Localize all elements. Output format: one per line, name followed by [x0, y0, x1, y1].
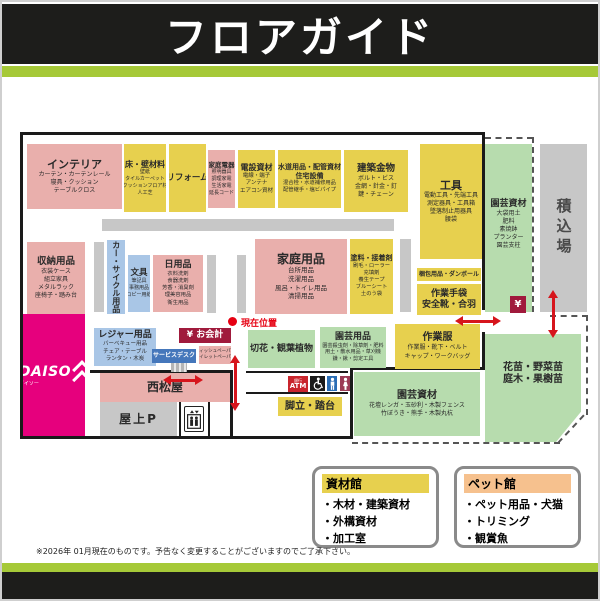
area-stepladder-title: 脚立・踏台: [285, 401, 335, 413]
boundary-dashed: [352, 442, 560, 444]
wall: [246, 392, 348, 394]
area-paint-line: 土のう袋: [361, 291, 382, 298]
area-garden-supply-title: 園芸資材: [490, 199, 526, 210]
area-stepladder: 脚立・踏台: [278, 397, 342, 416]
area-interior-line: カーテン・カーテンレール: [38, 171, 110, 179]
mens-restroom-icon: [327, 376, 337, 391]
wall: [20, 132, 485, 135]
area-packing-label: 梱包用品・ダンボール: [417, 268, 481, 281]
passage-arrow: [552, 297, 555, 331]
area-household-line: 台所用品: [288, 266, 314, 275]
shelf: [94, 242, 104, 312]
checkout-counter: ¥ お会計: [179, 328, 231, 343]
area-garden-supply-line: 園芸支柱: [496, 242, 520, 250]
boundary-dashed: [586, 315, 588, 415]
roof-parking: 屋上P: [100, 402, 177, 436]
service-desk: サービスデスク: [152, 349, 196, 363]
area-garden-supply-line: 肥料: [502, 218, 514, 226]
area-garden-material: 園芸資材 花壇レンガ・玉砂利・木製フェンス 竹ぼうき・熊手・木製丸杭: [354, 372, 480, 436]
area-paint-line: 刷毛・ローラー: [353, 263, 390, 270]
page-title: フロアガイド: [165, 4, 435, 65]
area-cut-flowers: 切花・観葉植物: [248, 330, 315, 368]
legend-item: ・加工室: [322, 530, 429, 547]
area-tissue: ティッシュペーパー トイレットペーパー: [199, 346, 231, 364]
area-floor-wall-line: タイルカーペット: [125, 176, 165, 183]
area-stationery-title: 文具: [130, 268, 147, 278]
area-plumbing-line: 配管継手・塩ビパイプ: [283, 187, 336, 194]
area-garden-goods-line: 鎌・鍬・剪定工具: [333, 356, 374, 363]
area-tools-line: 測定器具・工具箱: [427, 200, 475, 208]
legend-pet-hall: ペット館 ・ペット用品・犬猫 ・トリミング ・観賞魚: [454, 466, 581, 548]
floor-guide-page: フロアガイド インテリア カーテン・カーテンレール 寝具・クッション テーブルク…: [0, 0, 600, 601]
area-workwear-line: 作業服・靴下・ベルト: [407, 344, 467, 352]
area-home-appliance-line: 調理家電: [211, 176, 231, 183]
area-tools-title: 工具: [440, 179, 462, 192]
area-garden-supply-line: プランター: [493, 234, 523, 242]
area-interior-line: テーブルクロス: [54, 187, 96, 195]
area-interior-line: 寝具・クッション: [50, 179, 98, 187]
footer-accent-stripe: [2, 563, 598, 572]
area-garden-material-title: 園芸資材: [397, 390, 437, 402]
area-loading-dock-title: 積込場: [555, 198, 573, 258]
daiso-logo: DAISO: [23, 364, 71, 380]
legend-materials-hall: 資材館 ・木材・建築資材 ・外構資材 ・加工室: [312, 466, 439, 548]
area-workwear-line: キャップ・ワークバッグ: [405, 353, 471, 361]
area-reform-title: リフォーム: [169, 173, 206, 183]
area-packing-title: 梱包用品・ダンボール: [419, 271, 479, 278]
area-storage: 収納用品 衣装ケース 組立家具 メタルラック 座椅子・踏み台: [27, 242, 85, 314]
area-outdoor-plants-line: 花苗・野菜苗: [503, 362, 563, 374]
passage-arrow: [234, 362, 237, 404]
area-garden-goods-title: 園芸用品: [335, 332, 371, 343]
area-electric-line: アンテナ: [246, 180, 268, 187]
area-plumbing: 水道用品・配管資材 住宅設備 混合栓・水道補修用品 配管継手・塩ビパイプ: [278, 150, 341, 208]
area-storage-line: 衣装ケース: [41, 268, 71, 276]
area-tools-line: 腰袋: [445, 216, 457, 224]
area-stationery-line: コピー用紙: [128, 292, 150, 299]
area-storage-title: 収納用品: [37, 256, 75, 267]
area-daily-goods-line: 理美容用品: [165, 292, 192, 299]
area-daily-goods-title: 日用品: [164, 260, 191, 271]
footer-bar: [2, 572, 598, 601]
area-paint: 塗料・接着剤 刷毛・ローラー 充填剤 養生テープ ブルーシート 土のう袋: [350, 239, 393, 314]
area-garden-material-line: 竹ぼうき・熊手・木製丸杭: [381, 410, 453, 418]
wall: [246, 371, 348, 373]
area-car-cycle-title: カー・サイクル用品: [111, 241, 121, 313]
legend-item: ・木材・建築資材: [322, 496, 429, 513]
area-floor-wall-line: クッションフロア材: [124, 183, 166, 190]
area-work-gloves-title2: 安全靴・合羽: [422, 300, 476, 311]
wall: [350, 367, 353, 439]
area-workwear: 作業服 作業服・靴下・ベルト キャップ・ワークバッグ: [395, 324, 480, 369]
area-electric: 電設資材 電線・端子 アンテナ エアコン資材: [238, 150, 275, 208]
area-floor-wall-line: 人工芝: [137, 190, 152, 197]
area-hardware-line: ボルト・ビス: [358, 175, 394, 183]
area-household-line: 清掃用品: [288, 292, 314, 301]
area-daily-goods-line: 衛生用品: [167, 300, 188, 307]
legend-item: ・外構資材: [322, 513, 429, 530]
header-accent-stripe: [2, 66, 598, 77]
area-hardware-title: 建築金物: [357, 163, 395, 174]
area-workwear-title: 作業服: [423, 332, 453, 344]
shelf: [207, 255, 216, 313]
area-storage-line: 組立家具: [44, 276, 68, 284]
daiso-store: DAISO ダイソー: [23, 314, 85, 436]
area-paint-title: 塗料・接着剤: [351, 254, 393, 262]
area-leisure-title: レジャー用品: [98, 330, 152, 341]
area-plumbing-title2: 住宅設備: [296, 172, 324, 180]
area-leisure: レジャー用品 バーベキュー用品 チェア・テーブル ランタン・木炭: [94, 328, 156, 366]
area-tools: 工具 電動工具・先端工具 測定器具・工具箱 墜落制止用器具 腰袋: [420, 144, 482, 259]
daiso-chevrons-icon: [75, 365, 85, 385]
atm-label: ATM: [290, 383, 307, 390]
elevator-icon: [184, 406, 204, 432]
area-garden-goods: 園芸用品 園芸殺虫剤・除草剤・肥料 用土・散水用品・草刈機 鎌・鍬・剪定工具: [320, 327, 386, 368]
area-household: 家庭用品 台所用品 洗濯用品 風呂・トイレ用品 清掃用品: [255, 239, 347, 314]
legend-materials-hall-title: 資材館: [322, 474, 429, 493]
legend-item: ・ペット用品・犬猫: [464, 496, 571, 513]
wall: [179, 402, 181, 439]
area-household-title: 家庭用品: [277, 252, 325, 266]
shelf: [102, 219, 394, 231]
area-home-appliance-title: 家庭電器: [209, 162, 235, 170]
footer-note: ※2026年 01月現在のものです。予告なく変更することがございますのでご了承下…: [36, 546, 355, 557]
area-loading-dock: 積込場: [540, 144, 587, 312]
area-work-gloves-title: 作業手袋: [431, 289, 467, 300]
boundary-dashed: [550, 315, 588, 317]
area-electric-line: エアコン資材: [240, 188, 273, 195]
wheelchair-icon: [310, 376, 325, 391]
area-household-line: 洗濯用品: [288, 275, 314, 284]
header-bar: フロアガイド: [2, 4, 598, 64]
area-electric-title: 電設資材: [241, 163, 273, 173]
area-leisure-line: チェア・テーブル: [103, 349, 147, 356]
area-electric-line: 電線・端子: [243, 173, 271, 180]
womens-restroom-icon: [340, 376, 350, 391]
area-garden-supply: 園芸資材 大袋用土 肥料 素焼鉢 プランター 園芸支柱: [485, 144, 532, 312]
area-home-appliance-line: 延長コード: [209, 190, 234, 197]
area-plumbing-title: 水道用品・配管資材: [278, 163, 341, 171]
cashier-yen-box: ¥: [510, 296, 526, 313]
legend-pet-hall-title: ペット館: [464, 474, 571, 493]
shelf: [237, 255, 246, 313]
area-reform: リフォーム: [169, 144, 206, 212]
passage-arrow: [462, 320, 494, 323]
area-tools-line: 墜落制止用器具: [430, 208, 472, 216]
area-floor-wall: 床・壁材料 壁紙 タイルカーペット クッションフロア材 人工芝: [124, 144, 166, 212]
area-leisure-line: ランタン・木炭: [106, 356, 145, 363]
wall: [482, 332, 485, 370]
area-storage-line: 座椅子・踏み台: [35, 292, 77, 300]
area-hardware-line: 金網・針金・釘: [355, 183, 397, 191]
area-car-cycle: カー・サイクル用品: [107, 240, 125, 314]
area-outdoor-plants: 花苗・野菜苗 庭木・果樹苗: [485, 334, 581, 442]
legend-item: ・トリミング: [464, 513, 571, 530]
entrance-door: [171, 363, 187, 372]
area-cut-flowers-title: 切花・観葉植物: [250, 344, 313, 355]
checkout-label: ¥ お会計: [187, 330, 223, 341]
area-tools-line: 電動工具・先端工具: [424, 192, 478, 200]
area-garden-supply-line: 大袋用土: [496, 210, 520, 218]
area-leisure-line: バーベキュー用品: [103, 341, 147, 348]
roof-parking-label: 屋上P: [119, 412, 158, 426]
area-stationery: 文具 筆記具 事務用品 コピー用紙: [128, 255, 150, 312]
passage-arrow: [170, 379, 196, 382]
area-stationery-line: 事務用品: [129, 285, 149, 292]
area-floor-wall-title: 床・壁材料: [125, 160, 165, 170]
wall: [20, 436, 353, 439]
area-hardware-line: 鍵・チェーン: [358, 191, 394, 199]
boundary-dashed: [532, 137, 534, 312]
area-hardware: 建築金物 ボルト・ビス 金網・針金・釘 鍵・チェーン: [344, 150, 408, 212]
area-garden-material-line: 花壇レンガ・玉砂利・木製フェンス: [369, 402, 465, 410]
legend-item: ・観賞魚: [464, 530, 571, 547]
current-location-label: 現在位置: [241, 316, 277, 329]
area-storage-line: メタルラック: [38, 284, 74, 292]
cashier-yen-label: ¥: [515, 299, 522, 311]
current-location-dot: [228, 317, 237, 326]
area-interior: インテリア カーテン・カーテンレール 寝具・クッション テーブルクロス: [27, 144, 122, 209]
area-daily-goods: 日用品 衣料洗剤 食器洗剤 芳香・消臭剤 理美容用品 衛生用品: [153, 255, 203, 312]
boundary-dashed: [485, 137, 533, 139]
wall: [208, 402, 210, 439]
daiso-logo-sub: ダイソー: [23, 380, 39, 387]
area-home-appliance: 家庭電器 照明器具 調理家電 生活家電 延長コード: [208, 150, 235, 208]
atm-box: 銀行 ATM: [288, 376, 308, 392]
shelf: [400, 239, 411, 312]
area-outdoor-plants-line: 庭木・果樹苗: [503, 374, 563, 386]
area-garden-supply-line: 素焼鉢: [499, 226, 517, 234]
service-desk-label: サービスデスク: [153, 352, 195, 359]
area-home-appliance-line: 生活家電: [211, 183, 231, 190]
area-interior-title: インテリア: [47, 158, 102, 171]
area-tissue-line: トイレットペーパー: [199, 355, 231, 361]
area-work-gloves: 作業手袋 安全靴・合羽: [417, 284, 481, 315]
